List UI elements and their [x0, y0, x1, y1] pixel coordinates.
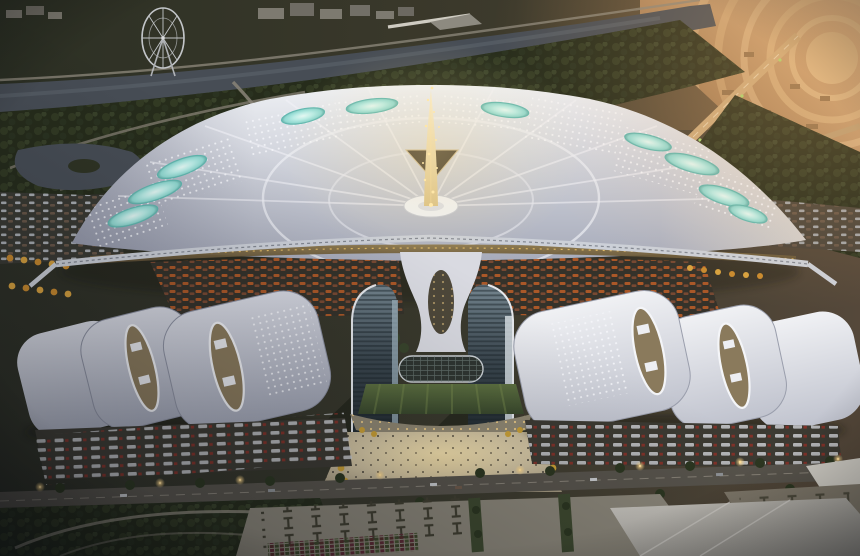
lighting [0, 0, 860, 556]
vignette [0, 0, 860, 556]
aerial-rendering [0, 0, 860, 556]
rendering-canvas [0, 0, 860, 556]
